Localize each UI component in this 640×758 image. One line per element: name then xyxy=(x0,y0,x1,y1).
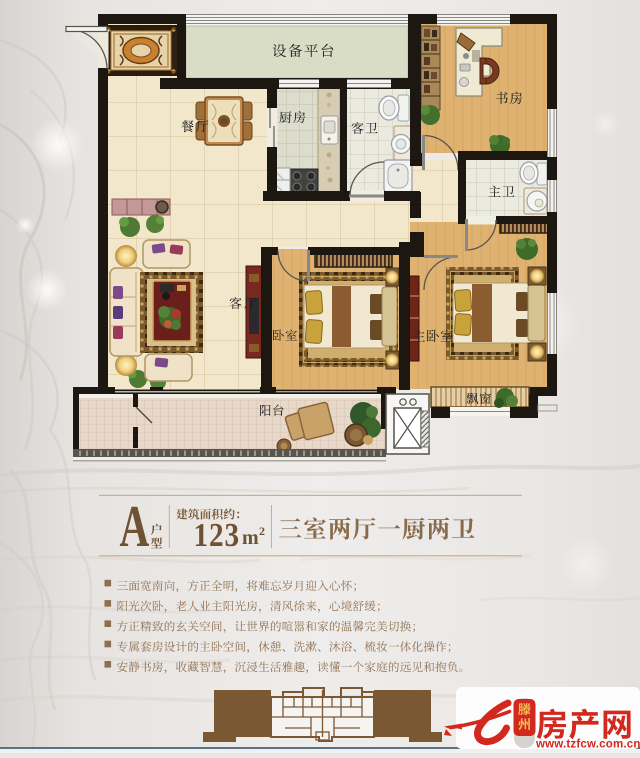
svg-text:m: m xyxy=(242,527,259,549)
svg-text:2: 2 xyxy=(259,524,265,538)
svg-text:www.tzfcw.com.cn: www.tzfcw.com.cn xyxy=(535,739,640,751)
svg-text:A: A xyxy=(120,495,150,560)
svg-text:123: 123 xyxy=(194,516,240,554)
